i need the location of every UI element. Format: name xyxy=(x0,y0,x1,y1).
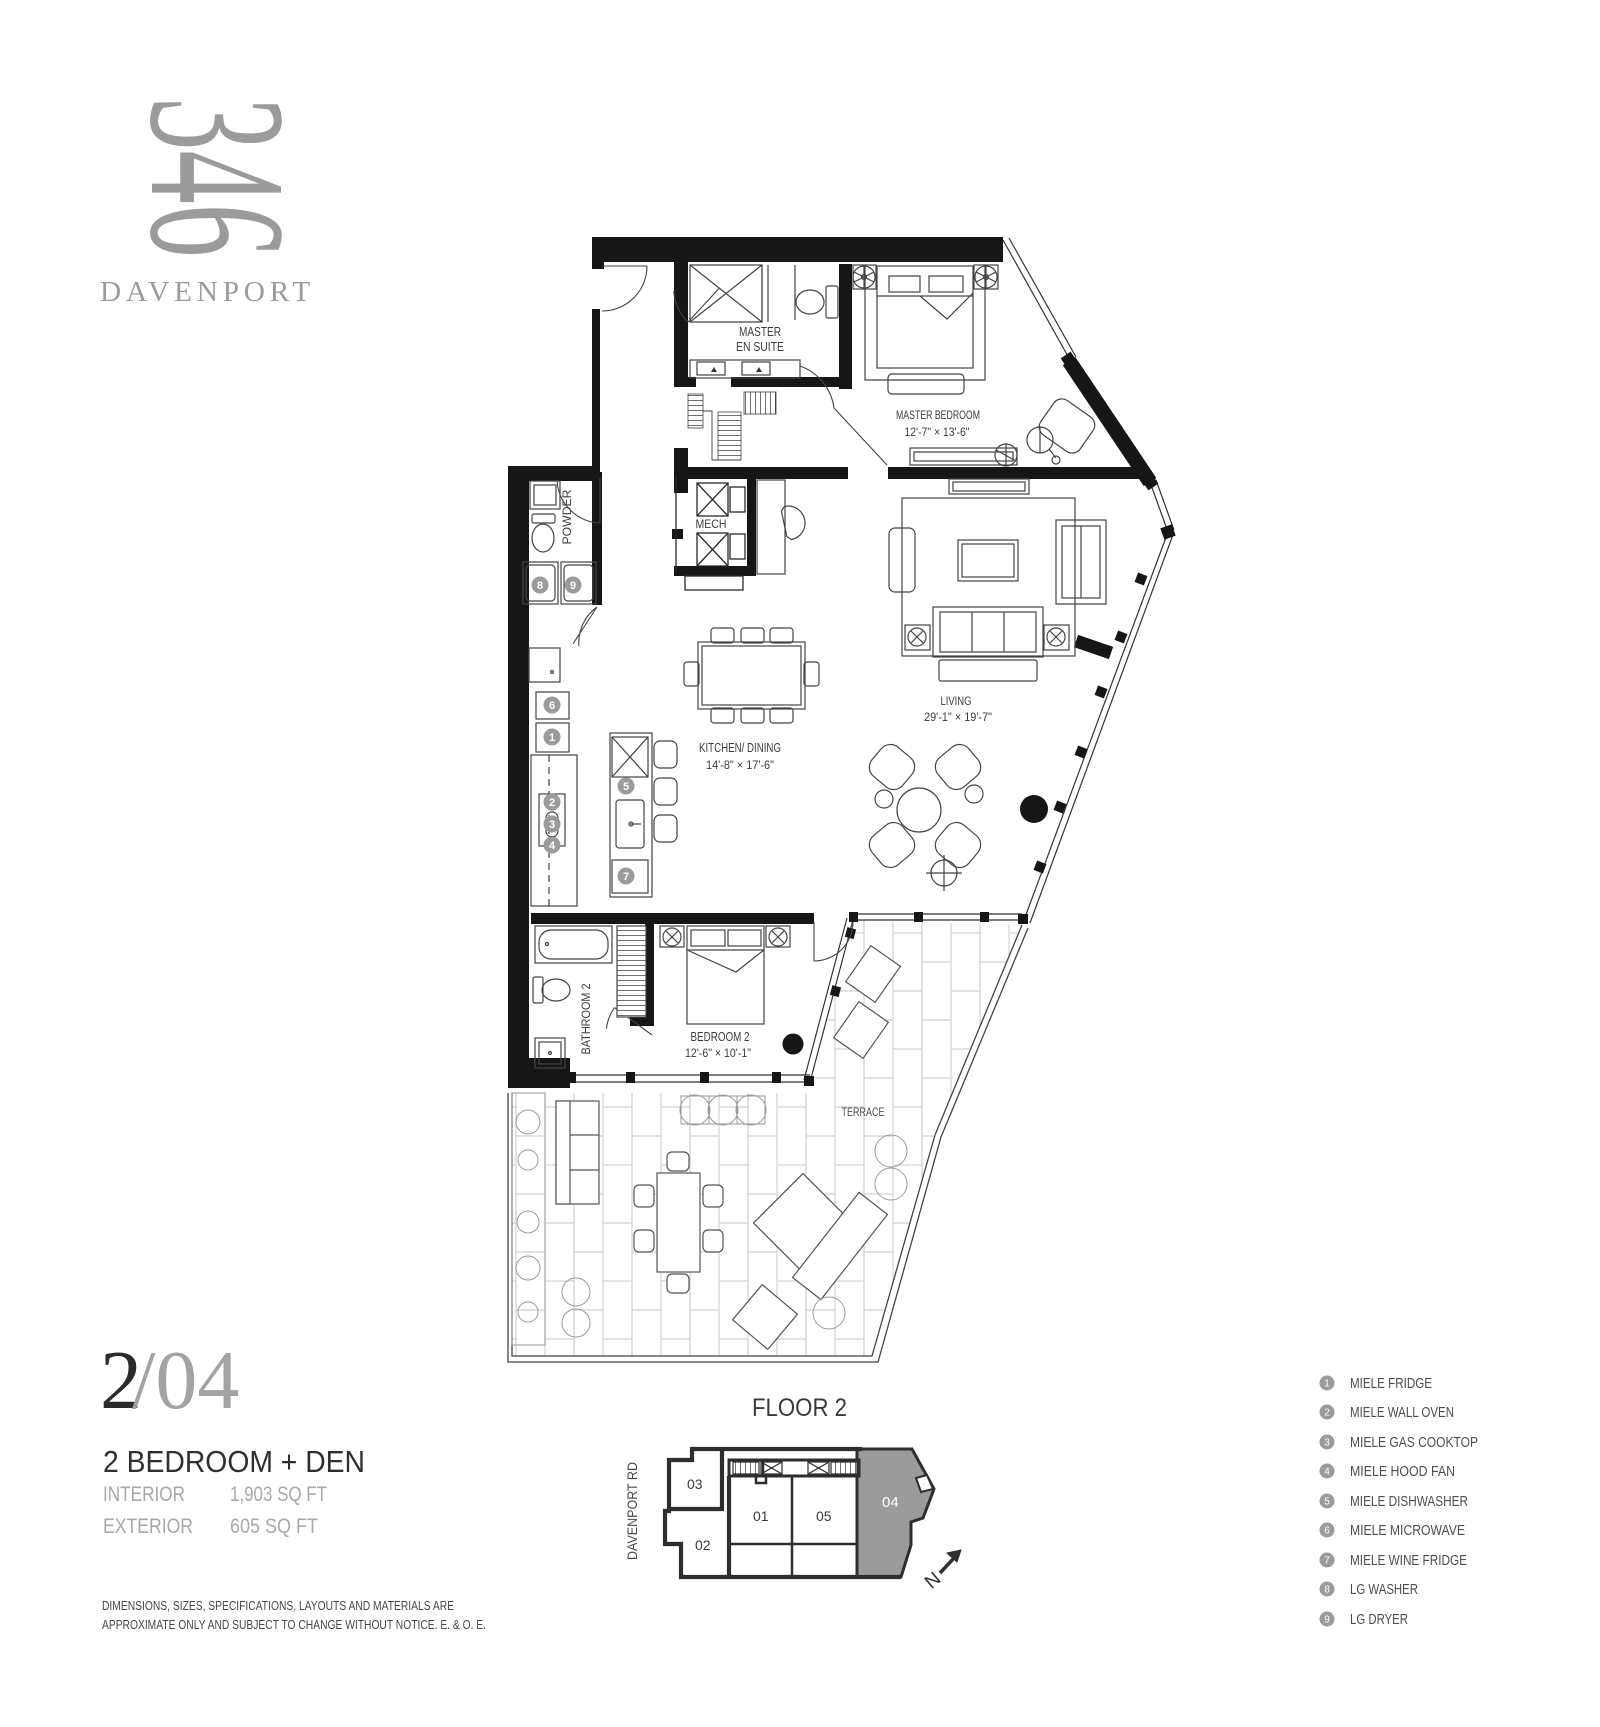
svg-text:DAVENPORT RD: DAVENPORT RD xyxy=(624,1462,640,1560)
svg-text:12'-7" × 13'-6": 12'-7" × 13'-6" xyxy=(905,425,970,439)
svg-text:MIELE DISHWASHER: MIELE DISHWASHER xyxy=(1350,1494,1468,1510)
svg-text:5: 5 xyxy=(1324,1497,1330,1508)
svg-text:2: 2 xyxy=(1324,1408,1330,1419)
svg-text:DAVENPORT: DAVENPORT xyxy=(100,277,315,308)
svg-text:LG WASHER: LG WASHER xyxy=(1350,1582,1418,1598)
svg-text:605 SQ FT: 605 SQ FT xyxy=(230,1515,318,1538)
svg-text:BATHROOM 2: BATHROOM 2 xyxy=(581,984,593,1055)
svg-text:MASTER: MASTER xyxy=(739,325,781,339)
svg-text:MECH: MECH xyxy=(696,517,727,531)
svg-text:2 BEDROOM + DEN: 2 BEDROOM + DEN xyxy=(103,1444,365,1479)
svg-text:BEDROOM 2: BEDROOM 2 xyxy=(691,1030,750,1044)
svg-text:346: 346 xyxy=(109,97,326,257)
svg-text:MIELE WALL OVEN: MIELE WALL OVEN xyxy=(1350,1405,1454,1421)
svg-text:6: 6 xyxy=(549,700,555,712)
svg-text:5: 5 xyxy=(623,781,629,793)
svg-text:6: 6 xyxy=(1324,1526,1330,1537)
svg-text:1: 1 xyxy=(549,732,555,744)
svg-text:01: 01 xyxy=(753,1508,769,1524)
svg-text:4: 4 xyxy=(549,840,556,852)
svg-text:KITCHEN/ DINING: KITCHEN/ DINING xyxy=(699,741,781,755)
svg-text:9: 9 xyxy=(1324,1615,1330,1626)
svg-text:APPROXIMATE ONLY AND SUBJECT T: APPROXIMATE ONLY AND SUBJECT TO CHANGE W… xyxy=(102,1617,486,1632)
svg-text:12'-6" × 10'-1": 12'-6" × 10'-1" xyxy=(685,1046,751,1060)
svg-text:FLOOR 2: FLOOR 2 xyxy=(752,1394,847,1422)
svg-text:04: 04 xyxy=(882,1494,899,1511)
svg-text:4: 4 xyxy=(1324,1467,1330,1478)
svg-text:INTERIOR: INTERIOR xyxy=(103,1483,185,1506)
svg-text:8: 8 xyxy=(1324,1585,1330,1596)
svg-text:EXTERIOR: EXTERIOR xyxy=(103,1515,193,1538)
svg-text:POWDER: POWDER xyxy=(562,490,574,545)
svg-text:DIMENSIONS, SIZES, SPECIFICATI: DIMENSIONS, SIZES, SPECIFICATIONS, LAYOU… xyxy=(102,1598,454,1613)
svg-text:1,903 SQ FT: 1,903 SQ FT xyxy=(230,1483,327,1506)
svg-text:EN SUITE: EN SUITE xyxy=(736,340,784,354)
svg-text:MIELE HOOD FAN: MIELE HOOD FAN xyxy=(1350,1464,1455,1480)
svg-text:2: 2 xyxy=(549,797,555,809)
svg-text:MASTER BEDROOM: MASTER BEDROOM xyxy=(896,408,980,422)
svg-text:LG DRYER: LG DRYER xyxy=(1350,1612,1408,1628)
svg-text:LIVING: LIVING xyxy=(941,696,972,708)
svg-text:MIELE WINE FRIDGE: MIELE WINE FRIDGE xyxy=(1350,1553,1467,1569)
svg-text:29'-1" × 19'-7": 29'-1" × 19'-7" xyxy=(924,710,992,724)
svg-text:TERRACE: TERRACE xyxy=(842,1105,885,1119)
svg-text:8: 8 xyxy=(537,580,543,592)
svg-text:/04: /04 xyxy=(132,1334,239,1427)
svg-text:MIELE MICROWAVE: MIELE MICROWAVE xyxy=(1350,1523,1465,1539)
svg-text:MIELE FRIDGE: MIELE FRIDGE xyxy=(1350,1376,1432,1392)
svg-text:9: 9 xyxy=(570,580,576,592)
svg-text:14'-8" × 17'-6": 14'-8" × 17'-6" xyxy=(706,758,774,772)
svg-text:7: 7 xyxy=(623,871,629,883)
svg-text:03: 03 xyxy=(687,1476,703,1492)
svg-text:3: 3 xyxy=(549,819,555,831)
svg-text:3: 3 xyxy=(1324,1438,1330,1449)
svg-text:05: 05 xyxy=(816,1508,832,1524)
svg-text:7: 7 xyxy=(1324,1556,1330,1567)
svg-text:1: 1 xyxy=(1324,1379,1330,1390)
svg-text:02: 02 xyxy=(695,1537,711,1553)
svg-text:MIELE GAS COOKTOP: MIELE GAS COOKTOP xyxy=(1350,1435,1478,1451)
